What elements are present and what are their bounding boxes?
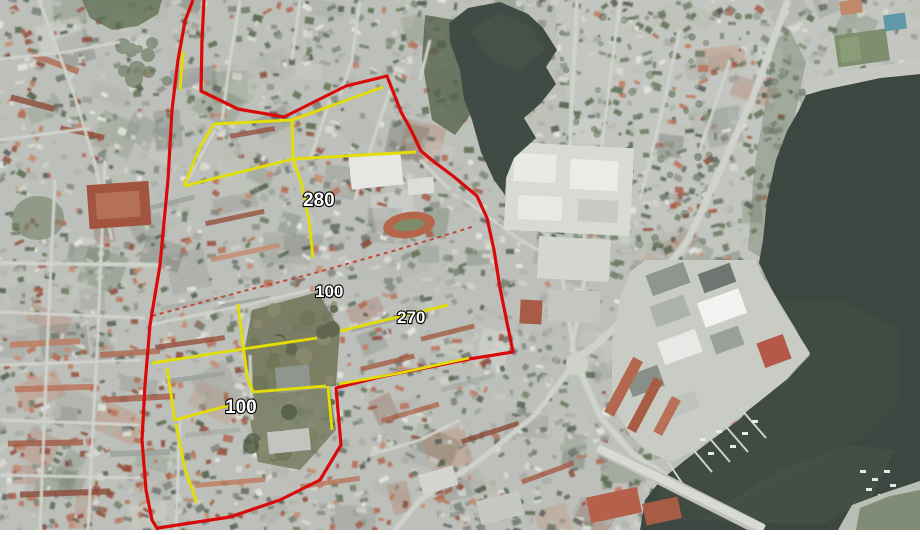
svg-text:270: 270 xyxy=(397,308,425,327)
svg-text:280: 280 xyxy=(303,190,335,211)
svg-text:100: 100 xyxy=(225,397,257,418)
svg-text:100: 100 xyxy=(315,282,343,301)
